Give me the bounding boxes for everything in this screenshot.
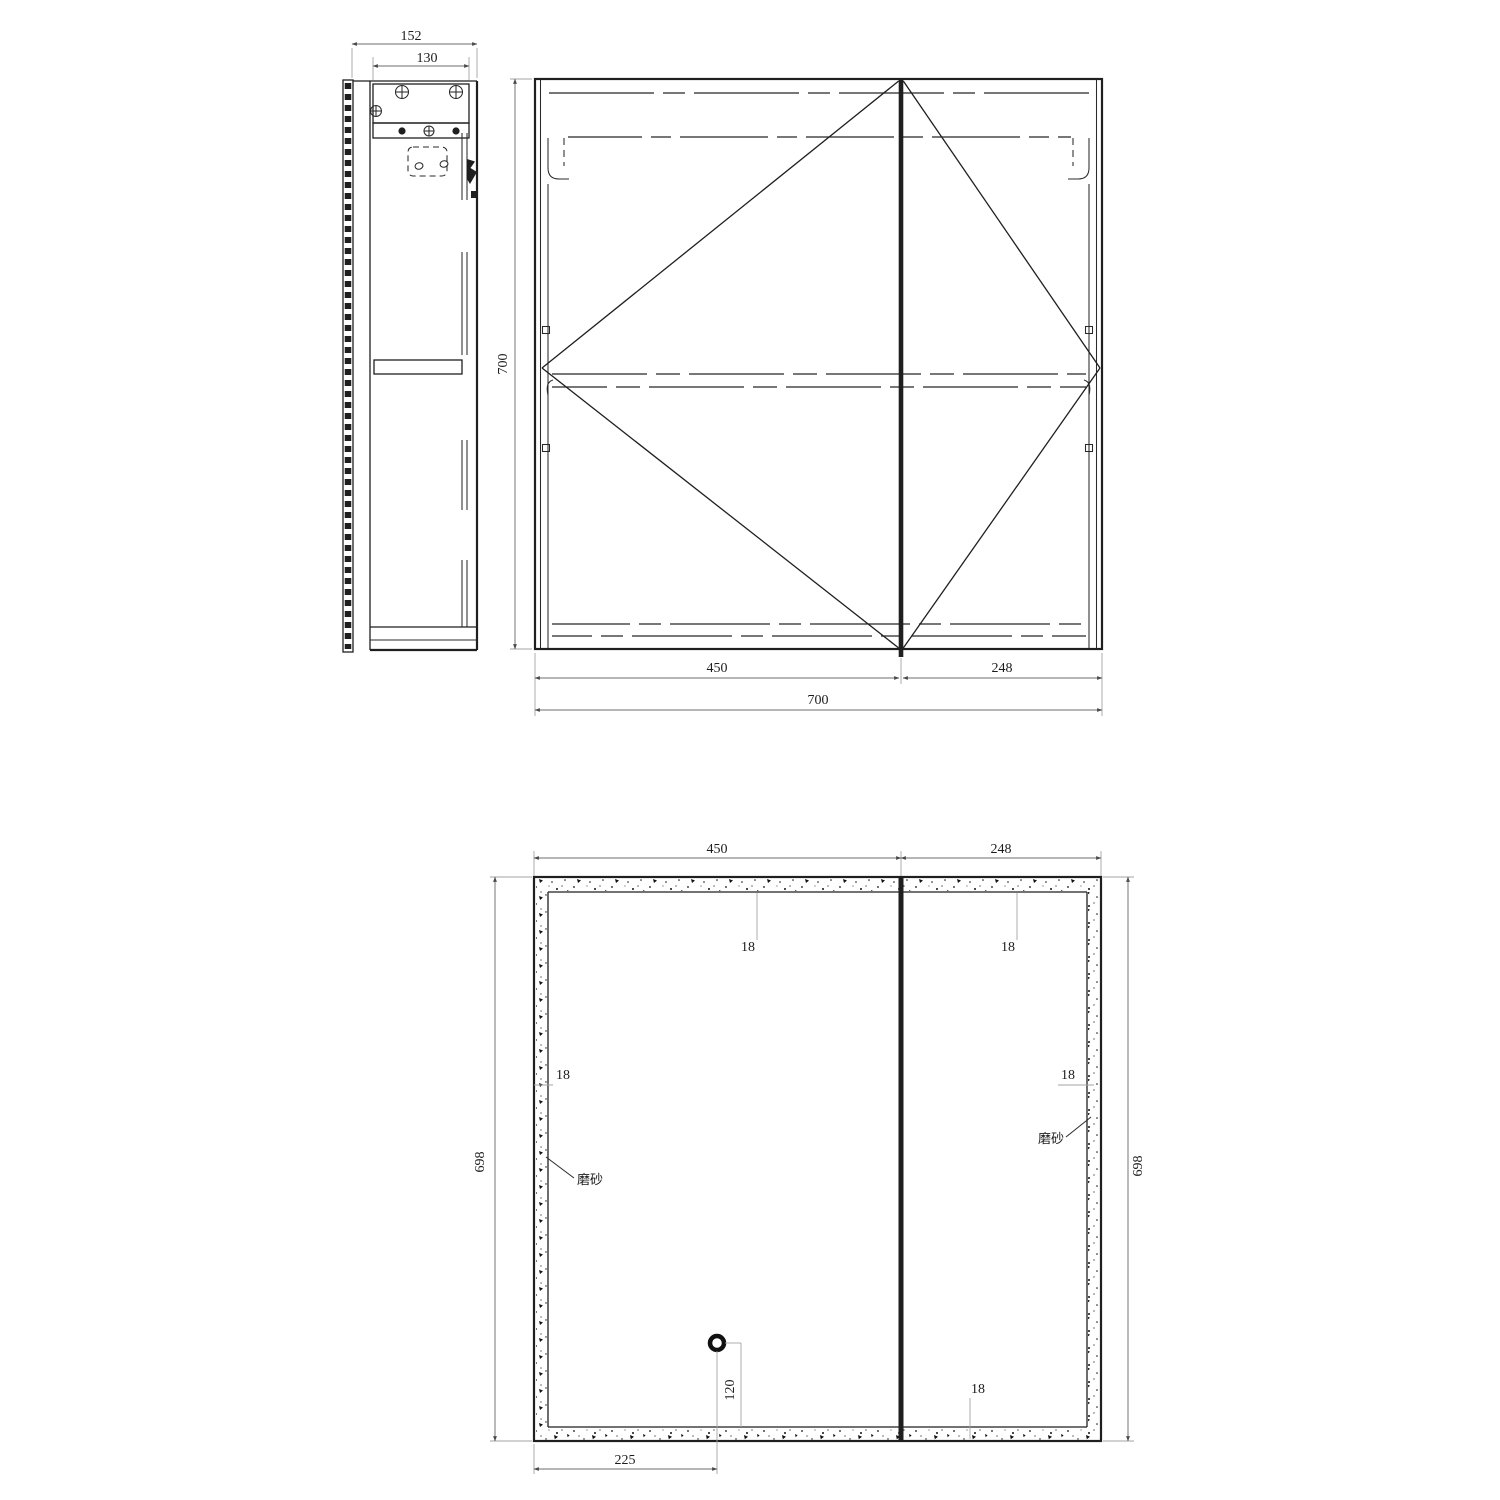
panel-left-height-dimension: 698 [473,877,532,1441]
screw-icon [452,127,459,134]
hinge-side-detail [462,133,477,200]
mounting-bracket [371,84,470,138]
hidden-bracket-right [1068,138,1089,179]
front-width-dimensions: 450 248 700 [535,653,1102,716]
front-height-label: 700 [496,354,511,375]
hole-position-dimensions: 120 225 [534,1343,741,1474]
panel-outline [534,877,1101,1441]
frost-bottom-label: 18 [971,1382,985,1397]
front-left-door-width-label: 450 [707,661,728,676]
panel-right-height-label: 698 [1131,1156,1146,1177]
frost-bands [536,879,1099,1440]
frost-callouts: 18 18 18 18 18 [534,893,1094,1439]
hole-left-offset-label: 225 [615,1453,636,1468]
side-view: 152 130 [343,29,477,652]
frost-inner-edges [548,892,1087,1427]
hole-bottom-offset-label: 120 [723,1380,738,1401]
frost-band-bottom [536,1428,1099,1440]
screw-icon [396,86,409,99]
panel-width-dimensions: 450 248 [534,842,1101,876]
panel-divider [899,877,904,1441]
frost-top-left-label: 18 [741,940,755,955]
frost-top-right-label: 18 [1001,940,1015,955]
frost-side-left-label: 18 [556,1068,570,1083]
door-divider [899,79,904,657]
side-depth-dimension: 152 [352,29,477,78]
shelf-side [374,360,462,374]
hidden-bottom [552,624,1086,636]
drawing-sheet: 152 130 [0,0,1500,1500]
frost-side-right-label: 18 [1061,1068,1075,1083]
door-back-edge [462,252,467,627]
panel-right-height-dimension: 698 [1103,877,1146,1441]
sensor-hole [710,1336,724,1350]
frost-band-top [536,879,1099,891]
screw-icon [424,126,434,136]
hidden-top-rail [549,93,1089,137]
right-door-diagonals [903,81,1100,648]
frost-label-left: 磨砂 [577,1172,603,1187]
frost-text-right: 磨砂 [1038,1117,1091,1146]
screw-icon [398,127,405,134]
screw-icon [450,86,463,99]
frost-text-left: 磨砂 [546,1157,603,1187]
panel-layout-view: 450 248 18 18 18 18 [473,842,1146,1474]
frost-band-left [536,891,547,1428]
hidden-hanger-bracket [408,147,449,176]
panel-right-width-label: 248 [991,842,1012,857]
frost-band-right [1088,891,1099,1428]
left-door-diagonals [542,81,899,648]
front-height-dimension: 700 [496,79,532,649]
side-rail-dimension: 130 [373,51,469,80]
screw-icon [371,106,382,117]
side-depth-label: 152 [401,29,422,44]
front-view: 700 450 248 700 [496,79,1102,716]
panel-left-width-label: 450 [707,842,728,857]
frost-label-right: 磨砂 [1038,1131,1064,1146]
hidden-shelf [552,374,1086,387]
hidden-bracket-left [548,138,569,179]
mirror-strip-section [343,80,353,652]
cabinet-outline [535,79,1102,649]
front-right-door-width-label: 248 [992,661,1013,676]
side-rail-label: 130 [417,51,438,66]
front-overall-width-label: 700 [808,693,829,708]
technical-drawing-canvas: 152 130 [0,0,1500,1500]
panel-left-height-label: 698 [473,1152,488,1173]
